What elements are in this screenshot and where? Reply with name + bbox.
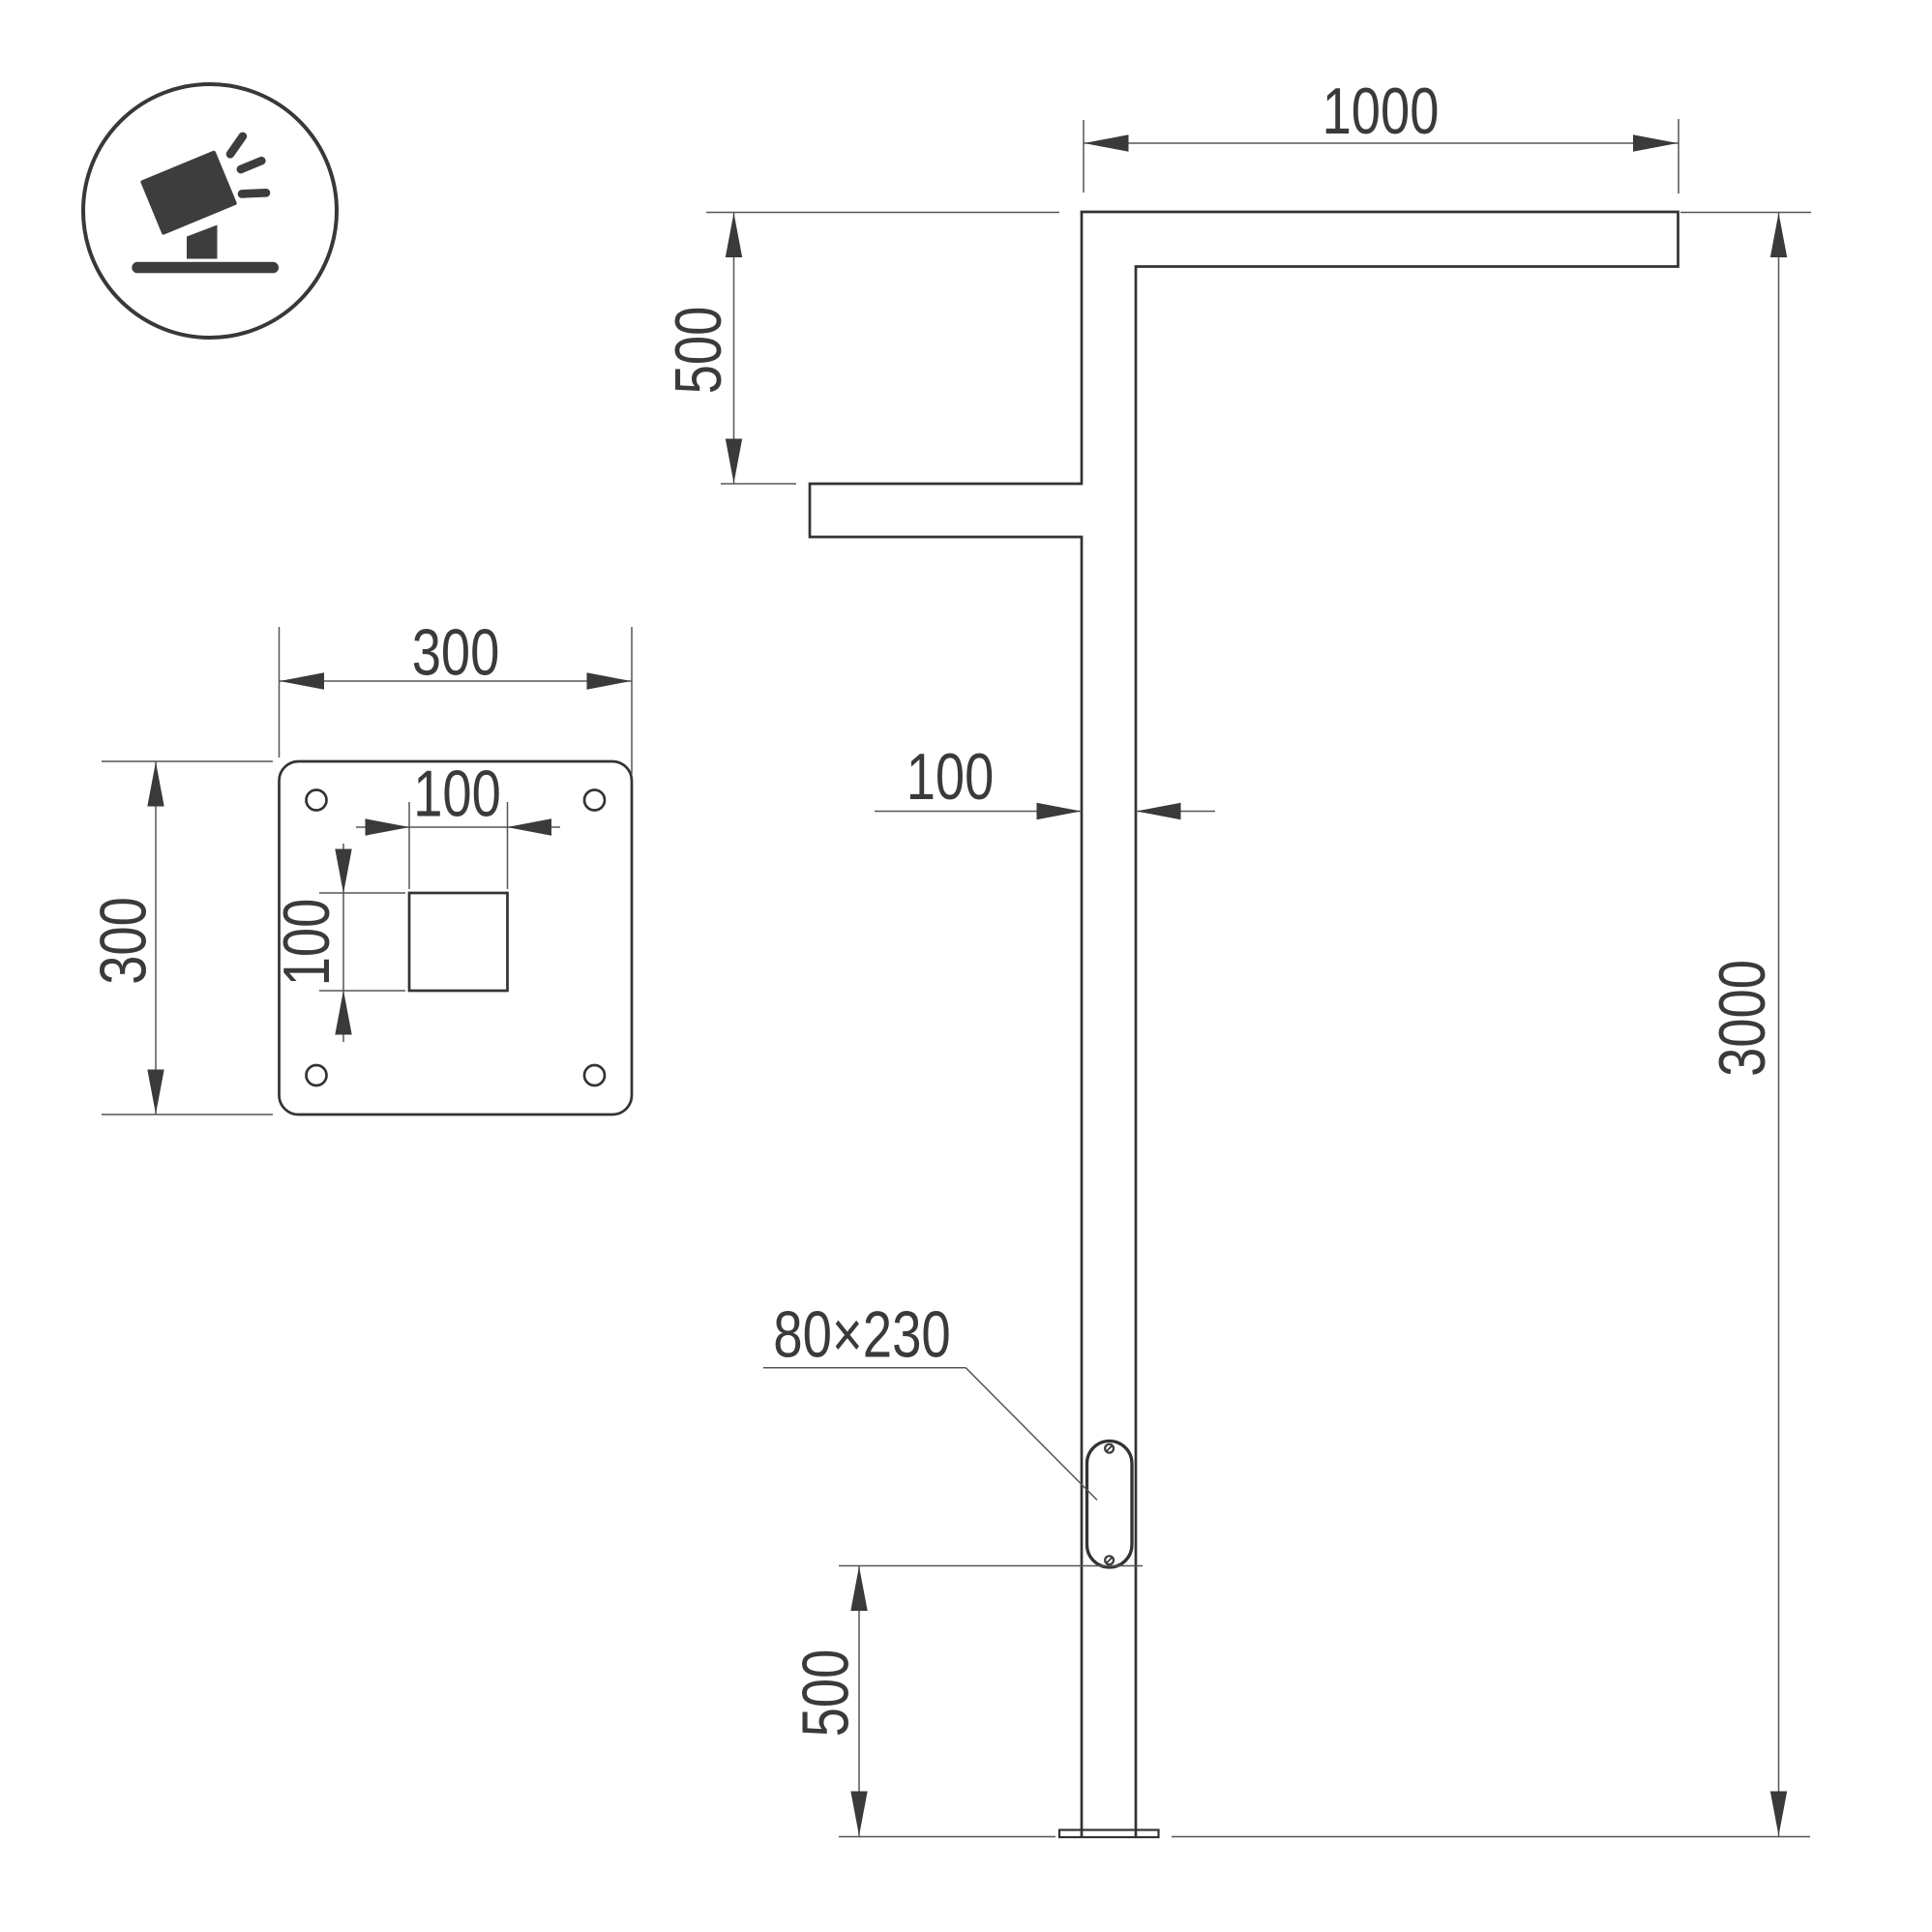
svg-text:300: 300 [412, 616, 500, 690]
svg-text:1000: 1000 [1323, 74, 1440, 148]
svg-text:500: 500 [662, 307, 735, 395]
svg-text:100: 100 [270, 899, 343, 987]
svg-text:80×230: 80×230 [773, 1298, 951, 1372]
svg-text:3000: 3000 [1706, 960, 1779, 1077]
svg-text:300: 300 [87, 897, 161, 985]
svg-text:500: 500 [789, 1650, 863, 1738]
svg-text:100: 100 [907, 740, 995, 814]
svg-text:100: 100 [413, 758, 501, 831]
